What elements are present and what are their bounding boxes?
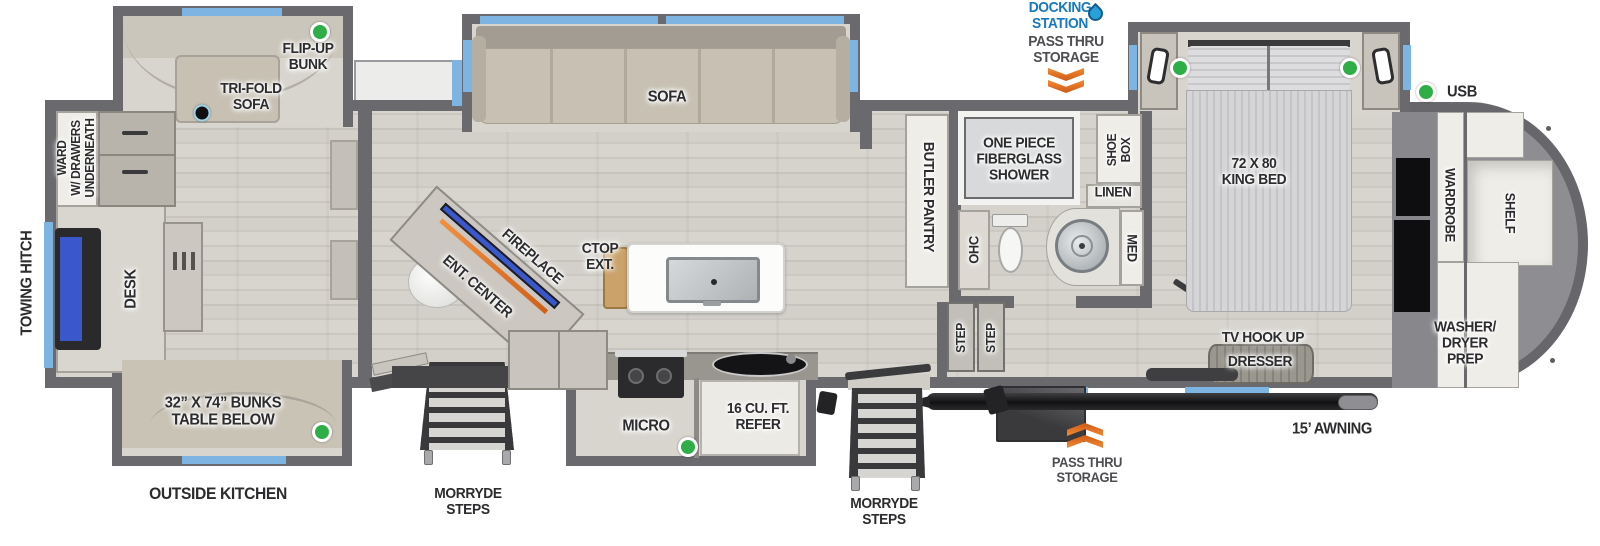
green-marker	[1170, 58, 1190, 78]
desk-tv	[55, 228, 101, 350]
arrow-down-icon	[1048, 68, 1084, 81]
sofa-backrest	[476, 26, 846, 50]
morryde-steps-label: MORRYDE STEPS	[850, 496, 917, 528]
wall-stub	[937, 302, 947, 385]
morryde-steps	[849, 388, 925, 478]
arrow-down-icon	[1048, 80, 1084, 93]
green-marker	[678, 437, 698, 457]
sink-drain	[711, 279, 717, 285]
sofa-armrest	[836, 36, 850, 122]
window	[463, 40, 472, 92]
usb-label: USB	[1447, 83, 1477, 100]
med-label: MED	[1124, 234, 1139, 262]
wardrobe-cavity	[1396, 158, 1430, 216]
morryde-steps-label: MORRYDE STEPS	[434, 486, 501, 518]
wall-cabinet	[330, 140, 358, 210]
step-foot	[424, 450, 433, 465]
cabinet-divider	[558, 332, 560, 388]
stove-back	[615, 350, 687, 357]
flip-up-bunk-label: FLIP-UP BUNK	[282, 41, 333, 73]
tv-screen	[60, 237, 82, 341]
dresser-label: DRESSER	[1228, 354, 1292, 370]
tv-cabinet	[1146, 368, 1238, 381]
green-marker	[1340, 58, 1360, 78]
shoe-box-label: SHOE BOX	[1105, 134, 1133, 166]
burner	[656, 368, 672, 384]
kitchen-faucet	[786, 354, 796, 364]
micro-label: MICRO	[622, 417, 669, 434]
wardrobe-label: WARDROBE	[1442, 168, 1457, 242]
island-faucet	[703, 301, 721, 306]
window	[44, 222, 53, 368]
window	[480, 16, 658, 24]
handle	[182, 252, 186, 270]
tri-fold-sofa-label: TRI-FOLD SOFA	[220, 81, 281, 113]
pillow-divider	[1267, 46, 1270, 90]
bathroom-sink	[1055, 219, 1109, 273]
bed-pillows	[1188, 46, 1350, 90]
pass-thru-bottom-label: PASS THRU STORAGE	[1052, 455, 1122, 485]
island-sink	[666, 257, 760, 303]
green-marker	[310, 22, 330, 42]
step-foot	[851, 476, 860, 491]
shelf-label: SHELF	[1502, 193, 1517, 233]
drawer-handle	[122, 170, 148, 174]
window	[182, 8, 282, 16]
pass-thru-top-label: PASS THRU STORAGE	[1028, 34, 1103, 66]
ohc-label: OHC	[966, 236, 981, 264]
awning-roller	[1338, 395, 1378, 410]
washer-dryer-label: WASHER/ DRYER PREP	[1434, 320, 1496, 369]
bunks-label: 32” X 74” BUNKS TABLE BELOW	[165, 395, 281, 430]
cap-screw	[1546, 126, 1551, 131]
butler-pantry-label: BUTLER PANTRY	[920, 142, 936, 252]
awning-label: 15’ AWNING	[1292, 420, 1372, 437]
window	[849, 40, 858, 92]
wardrobe-cavity	[1394, 220, 1430, 312]
wall-cabinet	[330, 240, 358, 300]
sink-drain	[1079, 243, 1085, 249]
rv-floorplan: DOCKING STATION PASS THRU STORAGE FLIP-U…	[0, 0, 1600, 546]
step-label: STEP	[984, 323, 998, 353]
handle	[173, 252, 177, 270]
window	[1403, 45, 1411, 90]
usb-marker	[1416, 82, 1436, 102]
black-marker	[194, 105, 211, 122]
window	[1129, 45, 1137, 90]
shower-label: ONE PIECE FIBERGLASS SHOWER	[976, 136, 1061, 185]
ward-drawers	[98, 111, 176, 207]
tv-hook-up-label: TV HOOK UP	[1222, 330, 1304, 346]
towing-hitch-label: TOWING HITCH	[18, 231, 35, 336]
sofa-cushions	[478, 48, 844, 124]
linen-label: LINEN	[1095, 184, 1132, 199]
drawer-handle	[122, 131, 148, 135]
sofa-armrest	[472, 36, 486, 122]
desk-label: DESK	[122, 269, 139, 308]
docking-station-label: DOCKING STATION	[1029, 0, 1092, 32]
step-label: STEP	[954, 323, 968, 353]
kitchen-counter	[392, 366, 510, 388]
desk-hutch	[163, 222, 203, 332]
king-bed-label: 72 X 80 KING BED	[1222, 156, 1287, 188]
exterior-panel	[354, 60, 454, 104]
step-foot	[502, 450, 511, 465]
toilet-tank	[992, 214, 1028, 227]
outside-kitchen-label: OUTSIDE KITCHEN	[149, 485, 287, 503]
ward-label: WARD W/ DRAWERS UNDERNEATH	[55, 118, 97, 197]
nightstand-window	[1371, 47, 1395, 86]
base-cabinet	[508, 330, 608, 390]
ctop-ext-label: CTOP EXT.	[582, 241, 619, 273]
cap-screw	[1550, 358, 1555, 363]
window	[666, 16, 844, 24]
cap-shelf-top	[1466, 112, 1524, 158]
cooktop	[618, 356, 684, 398]
handle	[191, 252, 195, 270]
wall-stub	[860, 111, 872, 149]
kitchen-island	[627, 243, 785, 313]
toilet-bowl	[998, 227, 1023, 273]
nightstand	[1362, 32, 1400, 110]
partition-wall	[358, 111, 372, 377]
green-marker	[312, 422, 332, 442]
nightstand-window	[1146, 47, 1170, 86]
sofa-label: SOFA	[648, 88, 687, 105]
king-bed-mattress	[1186, 90, 1352, 312]
window	[452, 60, 462, 106]
refer-label: 16 CU. FT. REFER	[727, 401, 789, 433]
burner	[628, 368, 644, 384]
drawer-divider	[100, 154, 174, 156]
awning-bracket	[816, 391, 838, 416]
step-foot	[911, 476, 920, 491]
